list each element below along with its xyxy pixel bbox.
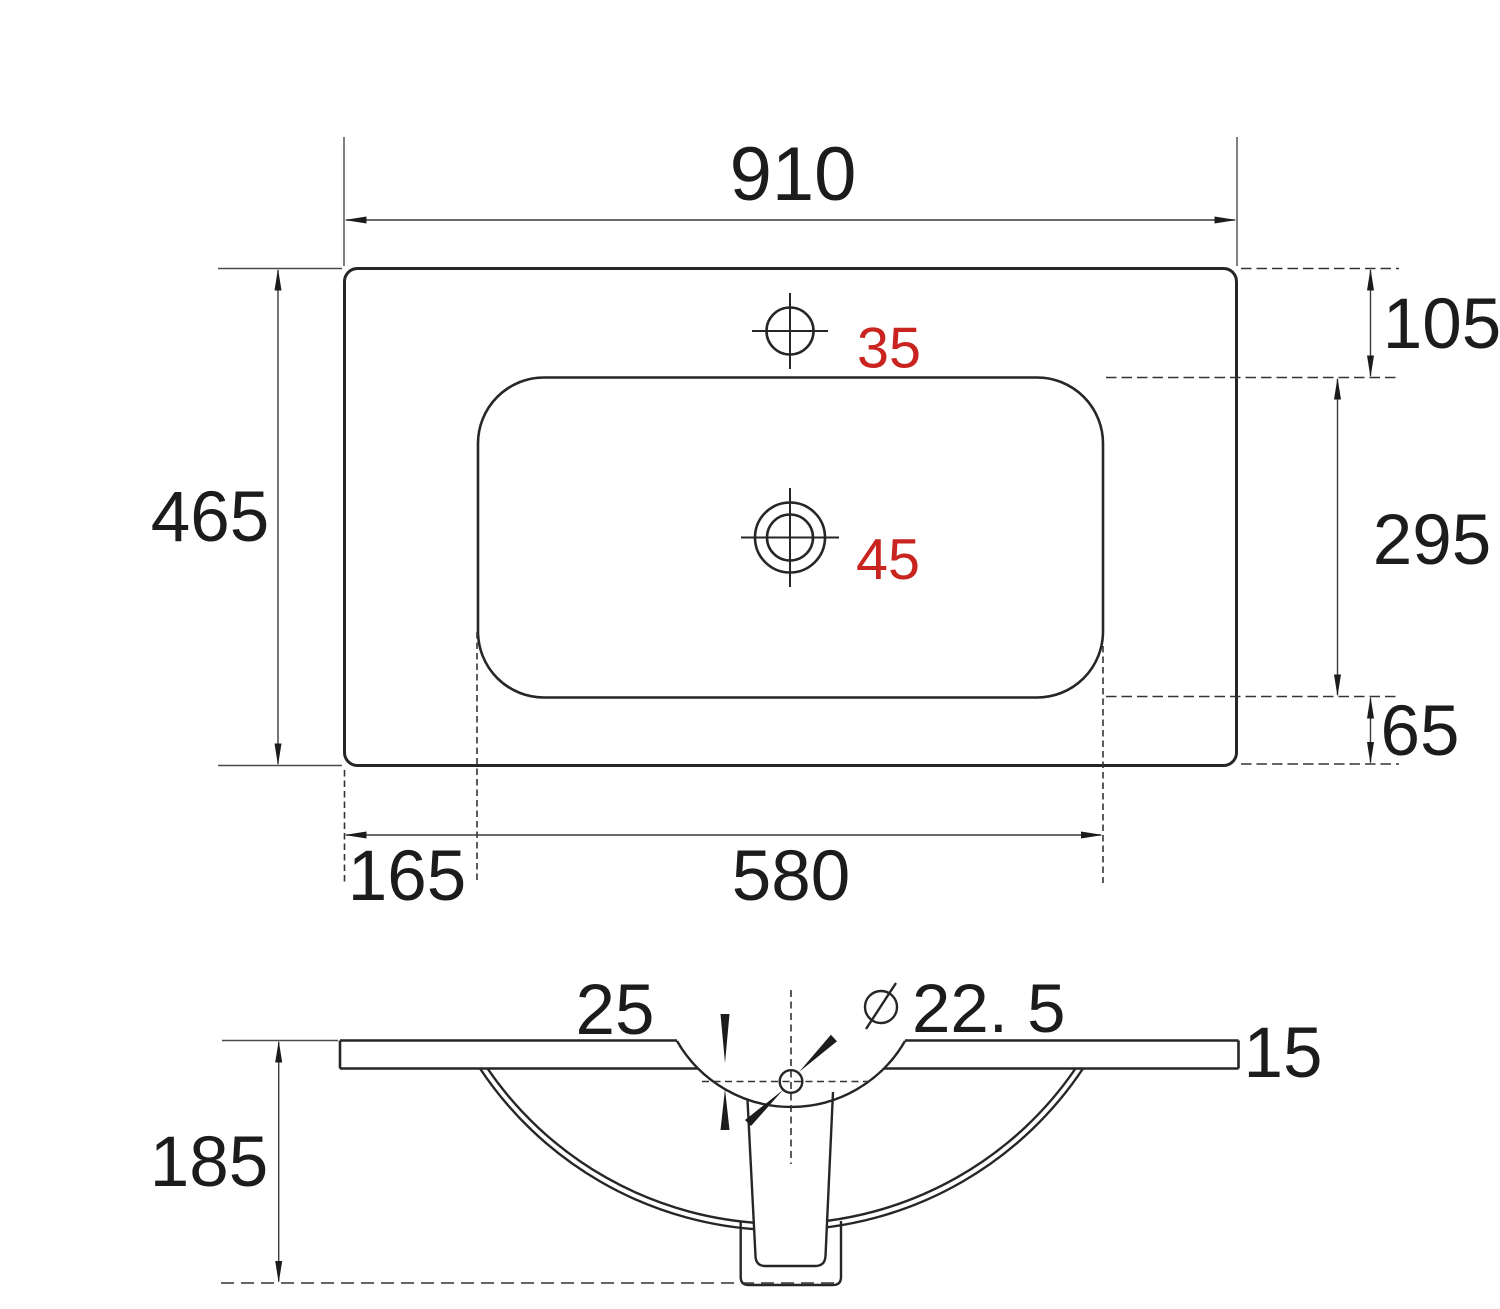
svg-text:25: 25 <box>576 971 655 1050</box>
svg-text:910: 910 <box>730 132 857 217</box>
svg-text:15: 15 <box>1244 1014 1323 1093</box>
svg-text:295: 295 <box>1373 501 1491 580</box>
svg-text:105: 105 <box>1383 285 1500 364</box>
svg-text:65: 65 <box>1381 692 1460 771</box>
svg-text:22. 5: 22. 5 <box>912 970 1065 1047</box>
svg-text:185: 185 <box>150 1123 268 1202</box>
svg-text:45: 45 <box>856 528 920 592</box>
svg-text:165: 165 <box>348 837 466 916</box>
svg-text:465: 465 <box>151 478 269 557</box>
svg-text:35: 35 <box>857 317 921 381</box>
svg-text:580: 580 <box>732 837 850 916</box>
